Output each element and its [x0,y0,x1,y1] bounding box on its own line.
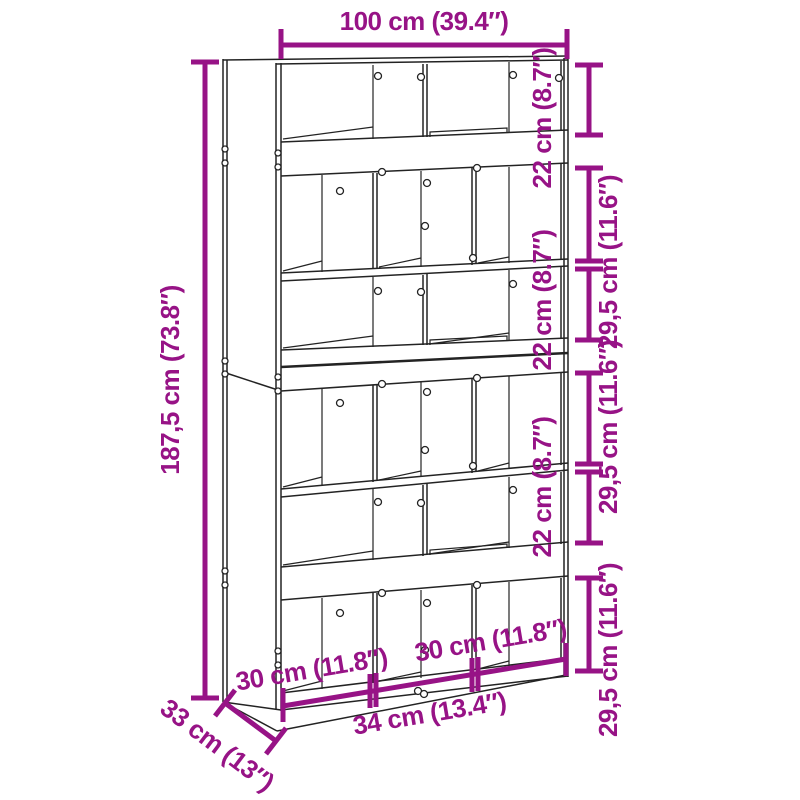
dim-label-total-height: 187,5 cm (73.8″) [155,285,185,474]
dim-label-shelf-small-2: 22 cm (8.7″) [527,230,557,371]
dimension-diagram: 100 cm (39.4″) 187,5 cm (73.8″) 22 cm (8… [0,0,800,800]
dim-label-shelf-large-3: 29,5 cm (11.6″) [593,563,623,737]
dim-depth: 33 cm (13″) [155,690,286,797]
dim-label-top-width: 100 cm (39.4″) [340,6,509,36]
dim-label-depth: 33 cm (13″) [155,692,280,797]
dim-label-shelf-large-1: 29,5 cm (11.6″) [593,175,623,349]
dim-label-shelf-small-1: 22 cm (8.7″) [527,48,557,189]
dim-label-shelf-small-3: 22 cm (8.7″) [527,417,557,558]
dim-label-bottom-right-width: 30 cm (11.8″) [412,613,568,668]
dim-top-width: 100 cm (39.4″) [281,6,567,59]
dim-label-shelf-large-2: 29,5 cm (11.6″) [593,340,623,514]
dim-label-bottom-left-width: 30 cm (11.8″) [233,642,389,697]
dim-total-height: 187,5 cm (73.8″) [155,62,219,698]
shelf-bands [281,130,568,600]
shelf-depth-lines [283,127,509,691]
